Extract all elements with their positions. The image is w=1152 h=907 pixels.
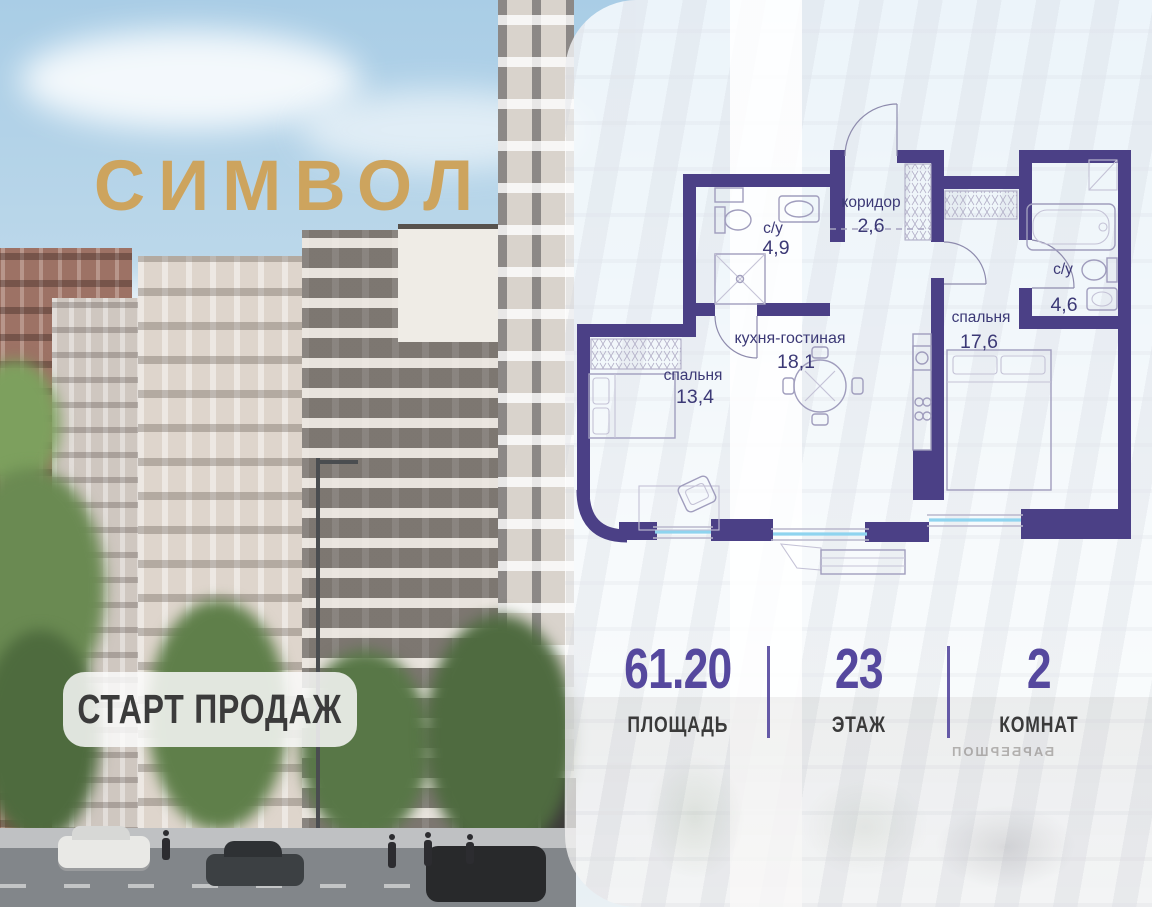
pedestrian <box>466 842 474 864</box>
room-area-bedroom1: 13,4 <box>676 386 714 408</box>
street-lamp <box>316 458 320 846</box>
floorplan-panel: БАРБЕРШОП <box>565 0 1152 907</box>
windows <box>653 515 1023 540</box>
pedestrian <box>388 842 396 868</box>
stat-divider <box>947 646 950 738</box>
tree <box>425 615 575 855</box>
white-car <box>58 836 150 868</box>
dark-car <box>426 846 546 902</box>
radiator <box>781 544 905 574</box>
stat-area: 61.20 ПЛОЩАДЬ <box>589 636 767 738</box>
stat-area-value: 61.20 <box>609 636 748 702</box>
room-area-bedroom2: 17,6 <box>960 331 998 353</box>
bedroom2-furniture <box>947 350 1051 490</box>
stat-area-label: ПЛОЩАДЬ <box>607 712 749 738</box>
room-area-kitchen: 18,1 <box>777 351 815 373</box>
room-name-kitchen: кухня-гостиная <box>734 330 845 347</box>
sedan-car <box>206 854 304 886</box>
stat-rooms: 2 КОМНАТ <box>950 636 1128 738</box>
room-name-bedroom2: спальня <box>952 309 1011 326</box>
apartment-stats: 61.20 ПЛОЩАДЬ 23 ЭТАЖ 2 КОМНАТ <box>589 636 1128 758</box>
stat-rooms-value: 2 <box>970 636 1109 702</box>
sales-start-label: СТАРТ ПРОДАЖ <box>78 686 343 733</box>
room-area-corridor: 2,6 <box>857 215 884 237</box>
room-name-bedroom1: спальня <box>664 367 723 384</box>
apartment-promo-card[interactable]: СИМВОЛ СТАРТ ПРОДАЖ БАРБЕРШОП <box>0 0 1152 907</box>
room-name-corridor: коридор <box>841 194 900 211</box>
stat-floor: 23 ЭТАЖ <box>770 636 948 738</box>
room-area-bathroom1: 4,9 <box>762 237 789 259</box>
room-name-bathroom2: с/у <box>1053 261 1073 278</box>
brand-logo: СИМВОЛ <box>80 146 500 227</box>
pedestrian <box>162 838 170 860</box>
stat-floor-value: 23 <box>789 636 928 702</box>
room-name-bathroom1: с/у <box>763 220 783 237</box>
sales-start-badge: СТАРТ ПРОДАЖ <box>63 672 357 747</box>
pedestrian <box>424 840 432 866</box>
room-area-bathroom2: 4,6 <box>1050 294 1077 316</box>
stat-floor-label: ЭТАЖ <box>787 712 929 738</box>
stat-rooms-label: КОМНАТ <box>968 712 1110 738</box>
floor-plan: коридор 2,6 с/у 4,9 кухня-гостиная 18,1 … <box>575 98 1141 596</box>
stat-divider <box>767 646 770 738</box>
